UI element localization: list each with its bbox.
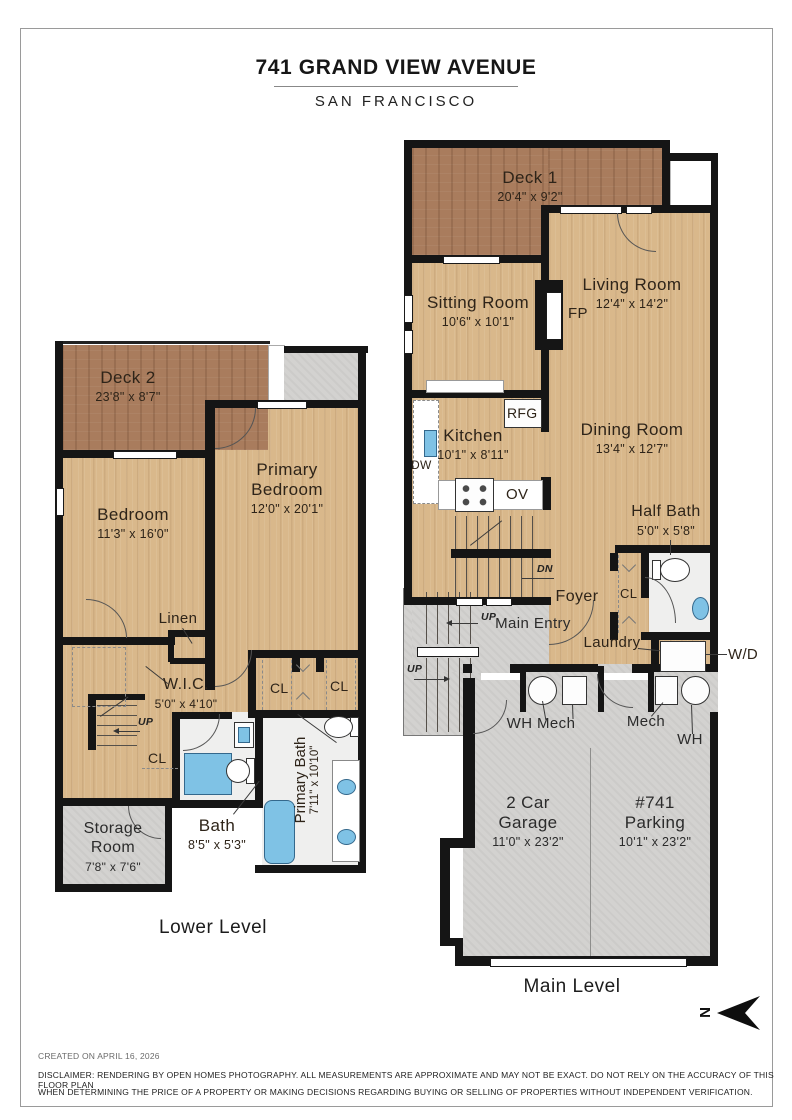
- shower-icon: [184, 753, 232, 795]
- room-label-primary-bath: Primary Bath 7'11" x 10'10": [292, 710, 328, 850]
- up-arrow-1: [446, 620, 452, 626]
- window: [257, 401, 307, 409]
- wall: [654, 205, 714, 213]
- closet-dashed: [72, 647, 126, 707]
- garage-divider-line: [590, 748, 591, 958]
- up-label-1: UP: [481, 611, 496, 623]
- toilet-icon: [660, 558, 690, 582]
- wall: [255, 865, 366, 873]
- wall: [55, 341, 63, 892]
- room-label-main-entry: Main Entry: [495, 615, 571, 633]
- room-label-deck2: Deck 2 23'8" x 8'7": [53, 368, 203, 405]
- wall: [662, 140, 670, 213]
- wh-mech-label-left: WH Mech: [491, 715, 591, 733]
- wall: [205, 400, 215, 690]
- room-label-bath: Bath 8'5" x 5'3": [152, 816, 282, 853]
- closet-label: CL: [270, 680, 289, 696]
- floor-plan-page: 741 GRAND VIEW AVENUE SAN FRANCISCO UP U…: [0, 0, 792, 1120]
- closet-label: CL: [148, 750, 167, 766]
- room-label-parking: #741 Parking 10'1" x 23'2": [614, 793, 696, 850]
- room-label-storage: Storage Room 7'8" x 7'6": [70, 820, 156, 874]
- up-arrow-line-lower: [118, 731, 140, 732]
- stairs-lower-flight: [455, 557, 541, 597]
- dn-label: DN: [537, 563, 553, 575]
- closet-label: CL: [620, 586, 637, 601]
- vanity: [332, 760, 360, 862]
- room-label-primary-bedroom: Primary Bedroom 12'0" x 20'1": [232, 460, 342, 517]
- closet-dashed: [618, 555, 619, 633]
- mech-icon: [655, 676, 678, 705]
- leader-line: [670, 540, 671, 555]
- wall: [170, 658, 215, 664]
- sidelight-window: [486, 598, 512, 606]
- room-label-sitting: Sitting Room 10'6" x 10'1": [426, 293, 530, 330]
- washer-dryer-label: W/D: [728, 646, 758, 663]
- room-label-deck1: Deck 1 20'4" x 9'2": [455, 168, 605, 205]
- wall: [440, 845, 450, 945]
- window: [560, 206, 622, 214]
- wall: [404, 140, 412, 603]
- walkway-strip: [268, 345, 285, 403]
- stair-landing: [417, 647, 479, 657]
- created-date: CREATED ON APRIL 16, 2026: [38, 1051, 160, 1061]
- closet-label: CL: [330, 678, 349, 694]
- room-label-garage: 2 Car Garage 11'0" x 23'2": [482, 793, 574, 850]
- wall: [710, 153, 718, 966]
- wall: [284, 346, 368, 353]
- leader-line: [706, 654, 727, 655]
- level-label-main: Main Level: [524, 976, 621, 998]
- level-label-lower: Lower Level: [159, 917, 267, 939]
- sidelight-window: [456, 598, 483, 606]
- page-subtitle: SAN FRANCISCO: [315, 93, 477, 110]
- oven-label: OV: [506, 486, 528, 503]
- up-arrow-2: [444, 676, 450, 682]
- fireplace-niche: [546, 292, 562, 340]
- wall: [641, 632, 718, 640]
- window: [404, 295, 413, 323]
- wall: [55, 637, 175, 645]
- up-arrow-line-1: [452, 623, 478, 624]
- title-divider: [274, 86, 518, 87]
- window: [443, 256, 500, 264]
- garage-door-gap: [472, 664, 510, 673]
- washer-dryer-icon: [660, 641, 706, 672]
- wall: [172, 800, 263, 808]
- open-notch: [670, 161, 711, 205]
- wall: [255, 712, 263, 808]
- window: [113, 451, 177, 459]
- toilet-icon: [324, 716, 353, 738]
- room-label-bedroom: Bedroom 11'3" x 16'0": [63, 505, 203, 542]
- mech-icon: [562, 676, 587, 705]
- room-label-living: Living Room 12'4" x 14'2": [582, 275, 682, 312]
- room-label-foyer: Foyer: [537, 588, 617, 607]
- toilet-icon: [226, 759, 250, 783]
- deck-edge: [58, 341, 270, 344]
- wall: [610, 553, 618, 571]
- wall: [248, 650, 360, 658]
- north-letter: N: [697, 1007, 714, 1018]
- sink-icon: [337, 829, 356, 845]
- wall: [55, 884, 172, 892]
- sink-icon: [692, 597, 709, 620]
- linen-label: Linen: [143, 610, 213, 628]
- up-arrow-line-2: [414, 679, 444, 680]
- north-arrow: N: [694, 992, 764, 1034]
- room-label-dining: Dining Room 13'4" x 12'7": [580, 420, 684, 457]
- garage-door: [490, 958, 687, 967]
- room-label-laundry: Laundry: [572, 634, 652, 652]
- fireplace-label: FP: [568, 305, 588, 322]
- room-label-wic: W.I.C. 5'0" x 4'10": [131, 676, 241, 711]
- window: [404, 330, 413, 354]
- up-label-lower: UP: [138, 716, 153, 728]
- north-arrow-icon: [716, 994, 762, 1032]
- counter: [426, 380, 504, 393]
- water-heater-icon: [681, 676, 710, 705]
- up-arrow-lower: [113, 728, 119, 734]
- refrigerator-label: RFG: [507, 405, 537, 421]
- stairs-upper-flight: [455, 516, 541, 549]
- wall: [404, 140, 670, 148]
- stove-icon: [455, 478, 494, 512]
- mech-label-right: Mech: [616, 713, 676, 731]
- dn-line: [522, 578, 554, 579]
- room-label-halfbath: Half Bath 5'0" x 5'8": [601, 503, 731, 539]
- disclaimer-line-2: WHEN DETERMINING THE PRICE OF A PROPERTY…: [38, 1087, 753, 1097]
- wall: [451, 549, 551, 558]
- wall: [316, 650, 324, 672]
- page-title: 741 GRAND VIEW AVENUE: [256, 56, 537, 80]
- sink-basin: [238, 727, 250, 743]
- room-label-kitchen: Kitchen 10'1" x 8'11": [408, 426, 538, 463]
- entry-patch: [284, 352, 358, 400]
- wall: [168, 630, 215, 637]
- wall: [55, 798, 172, 806]
- wall: [615, 545, 718, 553]
- up-label-2: UP: [407, 663, 422, 675]
- wh-label-right: WH: [670, 731, 710, 749]
- sink-icon: [337, 779, 356, 795]
- wall: [541, 390, 549, 432]
